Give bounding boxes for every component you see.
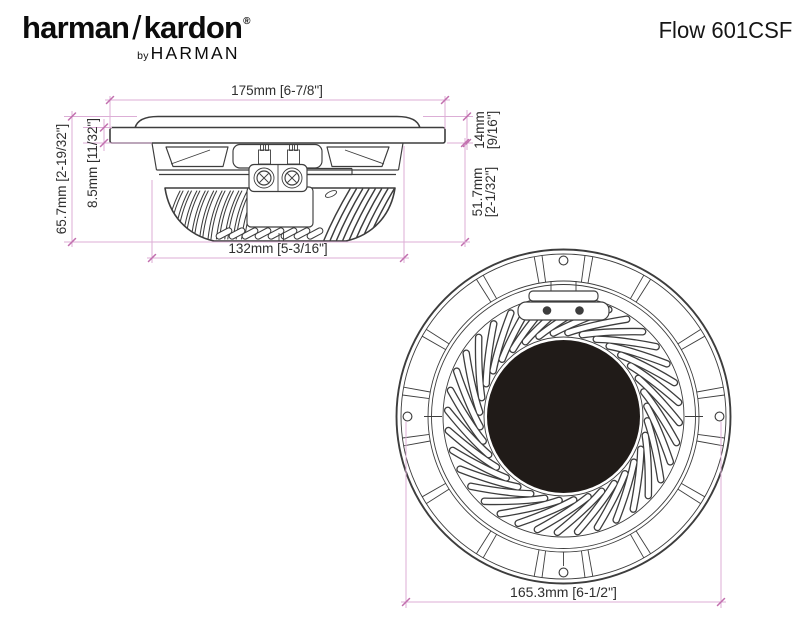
rim-spoke bbox=[588, 257, 593, 284]
speaker-front-drawing bbox=[397, 250, 731, 584]
rim-spoke bbox=[588, 550, 593, 577]
prong-left bbox=[259, 150, 271, 164]
dim-depth-below-label-in: [2-1/32"] bbox=[483, 167, 498, 218]
basket-window-left bbox=[166, 147, 228, 167]
basket-window-right bbox=[327, 147, 389, 167]
rim-spoke bbox=[630, 275, 643, 299]
logo-brand-harman: HARMAN bbox=[151, 43, 240, 63]
terminal-assembly-front bbox=[518, 281, 609, 320]
logo-slash: / bbox=[132, 11, 140, 46]
rim-spoke bbox=[422, 483, 446, 496]
rim-spoke bbox=[483, 534, 496, 558]
technical-drawing-page: harman/kardon® byHARMAN Flow 601CSF bbox=[0, 0, 800, 629]
bowl-slot-right bbox=[393, 189, 419, 240]
rim-spoke bbox=[404, 441, 431, 446]
brand-logo: harman/kardon® byHARMAN bbox=[22, 10, 250, 64]
rim-spoke bbox=[697, 441, 724, 446]
rim-spoke bbox=[678, 329, 701, 344]
dim-width-top-label: 175mm [6-7/8"] bbox=[231, 83, 323, 98]
rim-spoke bbox=[636, 531, 651, 554]
rim-spoke bbox=[534, 257, 539, 284]
rim-spoke bbox=[697, 387, 724, 392]
dim-depth-below: 51.7mm [2-1/32"] bbox=[462, 138, 499, 247]
dim-mounting-circle-label: 165.3mm [6-1/2"] bbox=[510, 584, 617, 600]
rim-spoke bbox=[534, 550, 539, 577]
mounting-hole bbox=[403, 412, 412, 421]
terminal-dot-left bbox=[543, 306, 552, 315]
mounting-flange bbox=[110, 128, 445, 144]
dim-width-bottom-label: 132mm [5-3/16"] bbox=[228, 241, 327, 256]
terminal-block bbox=[249, 165, 307, 192]
rim-spoke bbox=[476, 531, 491, 554]
rim-spoke bbox=[630, 534, 643, 558]
logo-harman: harman bbox=[22, 10, 129, 45]
rim-spoke bbox=[483, 275, 496, 299]
rim-spoke bbox=[636, 279, 651, 302]
dim-flange-thickness-label: 8.5mm [11/32"] bbox=[85, 118, 100, 208]
logo-kardon: kardon bbox=[144, 10, 243, 45]
rim-spoke bbox=[678, 489, 701, 504]
registered-mark-icon: ® bbox=[243, 16, 250, 27]
rim-spoke bbox=[681, 336, 705, 349]
logo-wordmark: harman/kardon® bbox=[22, 10, 250, 45]
rim-spoke bbox=[542, 255, 546, 282]
rim-spoke bbox=[404, 387, 431, 392]
mounting-hole bbox=[559, 568, 568, 577]
magnet-face bbox=[487, 340, 640, 493]
rim-spoke bbox=[426, 489, 449, 504]
magnet-housing bbox=[247, 187, 313, 227]
terminal-bracket-arm bbox=[306, 169, 352, 175]
front-view-svg: 165.3mm [6-1/2"] bbox=[390, 245, 752, 627]
terminal-dot-right bbox=[575, 306, 584, 315]
rim-spoke bbox=[476, 279, 491, 302]
model-number: Flow 601CSF bbox=[658, 17, 792, 44]
rim-spoke bbox=[698, 395, 725, 399]
rim-spoke bbox=[422, 336, 446, 349]
mounting-hole bbox=[715, 412, 724, 421]
rim-spoke bbox=[542, 551, 546, 578]
prong-right bbox=[288, 150, 300, 164]
rim-spoke bbox=[581, 255, 585, 282]
rim-spoke bbox=[426, 329, 449, 344]
terminal-bridge bbox=[529, 291, 598, 301]
rim-spoke bbox=[581, 551, 585, 578]
logo-by: by bbox=[137, 50, 149, 62]
speaker-side-drawing bbox=[110, 117, 445, 242]
terminal-body bbox=[518, 302, 609, 320]
rim-spoke bbox=[402, 395, 429, 399]
mounting-hole bbox=[559, 256, 568, 265]
grille-dome bbox=[135, 117, 420, 129]
terminal-cutout-lines bbox=[551, 281, 576, 291]
dim-flange-height-label-in: [9/16"] bbox=[485, 111, 500, 150]
dim-total-height-label: 65.7mm [2-19/32"] bbox=[54, 124, 69, 235]
rim-spoke bbox=[681, 483, 705, 496]
